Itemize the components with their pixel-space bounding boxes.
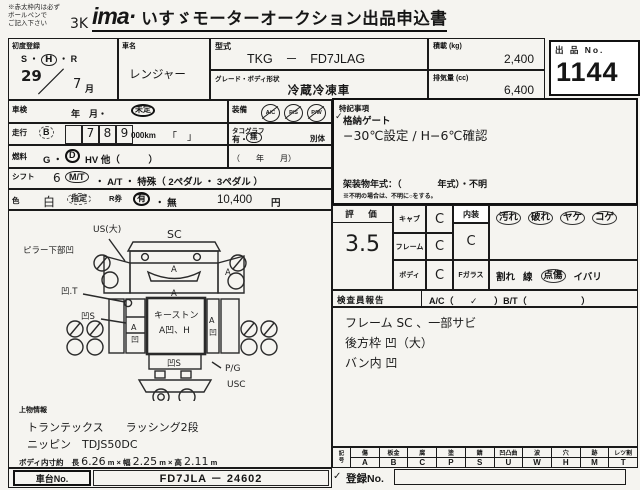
- fuel-cell: 燃料 G ・ D HV 他（ ）: [8, 145, 228, 168]
- color-hand-value: 白: [43, 193, 55, 210]
- legend-letter: A: [351, 458, 379, 467]
- superstructure-line: ニッピン TDJS50DC: [27, 436, 138, 452]
- legend-term: 波: [523, 448, 551, 458]
- fuel-pre: G ・: [43, 152, 63, 166]
- keyword-burn: コゲ: [592, 211, 617, 225]
- equipment-icons: A/C P/S P/W: [261, 104, 330, 122]
- shaken-label: 車検: [12, 104, 27, 115]
- legend-letter: T: [609, 458, 637, 467]
- legend-letter: P: [437, 458, 465, 467]
- displacement-label: 排気量 (cc): [433, 73, 468, 83]
- report-line: 後方枠 凹（大）: [345, 334, 433, 351]
- legend-col: 板金B: [380, 448, 409, 467]
- auction-sheet: ※赤太枠内は必ず ボールペンで ご記入下さい 3K ima· いすゞモーターオー…: [0, 0, 640, 490]
- mileage-badge: B: [39, 126, 54, 139]
- tachograph-circled: 無: [246, 132, 262, 143]
- diagram-sc-label: SC: [167, 228, 182, 241]
- legend-term: 腐: [408, 448, 436, 458]
- digit-box: [65, 125, 82, 144]
- registration-check-mark: ✓: [333, 471, 341, 482]
- glass-keywords: 割れ 線 点傷 イバリ: [496, 269, 602, 283]
- legend-letter: S: [466, 458, 494, 467]
- keyword-crack: 割れ: [496, 269, 515, 283]
- diagram-pillar-label: ピラー下部凹: [23, 245, 74, 256]
- superstructure-line: トランテックス ラッシング2段: [27, 419, 199, 435]
- payload-label: 積載 (kg): [433, 41, 462, 51]
- legend-col: 凹凸曲U: [495, 448, 524, 467]
- shift-rest: ・ A/T ・ 特殊（ 2ペダル ・ 3ペダル ）: [95, 174, 263, 188]
- first-reg-month: 7: [73, 77, 81, 92]
- aircon-icon: A/C: [261, 104, 280, 122]
- diagram-pg-label: P/G: [225, 364, 240, 374]
- ima-logo: ima·: [92, 5, 135, 28]
- equipment-cell: 装備 A/C P/S P/W: [228, 100, 332, 123]
- digit-box: 8: [99, 125, 116, 144]
- legend-letter: C: [408, 458, 436, 467]
- body-rating-value: C: [426, 260, 453, 290]
- registration-value-box: [394, 469, 626, 485]
- car-name-label: 車名: [122, 41, 136, 51]
- shaken-cell: 車検 年 月・ 未定: [8, 100, 228, 123]
- rating-label: 評 価: [333, 206, 392, 223]
- pen-note: ※赤太枠内は必ず ボールペンで ご記入下さい: [8, 4, 60, 27]
- legend-columns: 傷A 板金B 腐C 塗P 錆S 凹凸曲U 波W 穴H 跡M レツ割T: [351, 448, 637, 467]
- legend-col: 錆S: [466, 448, 495, 467]
- grade-cell: グレード・ボディ形状 冷蔵冷凍車: [210, 70, 428, 100]
- power-steering-icon: P/S: [284, 104, 303, 122]
- inspector-report-header: 検査員報告 A/C（ ✓ ）B/T（ ）: [332, 290, 638, 307]
- page-title: いすゞモーターオークション出品申込書: [141, 10, 447, 28]
- legend-col: 腐C: [408, 448, 437, 467]
- diagram-a-windshield: A: [171, 265, 177, 275]
- fuel-post: HV 他（ ）: [85, 152, 158, 166]
- legend-term: 塗: [437, 448, 465, 458]
- inner-dimension-label: ボディ内寸約: [19, 458, 63, 467]
- mileage-brackets: 「 」: [167, 128, 197, 143]
- r-ticket-rest: ・ 無: [155, 195, 177, 209]
- diagram-a-corner: A: [225, 268, 231, 278]
- chassis-label: 車台No.: [13, 470, 91, 486]
- r-ticket-label: R券: [109, 193, 122, 204]
- temperature-note: −30℃設定 / H−6℃確認: [343, 125, 487, 144]
- body-year-line: 架装物年式：（ 年式）・不明: [343, 177, 487, 190]
- pen-note-line: ご記入下さい: [8, 20, 60, 28]
- color-cell: 色 白 指定 R券 有 ・ 無 10,400 円: [8, 189, 332, 210]
- model-cell: 型式 TKG － FD7JLAG: [210, 38, 428, 70]
- hand-slash: ／: [37, 61, 65, 101]
- r-ticket-circled: 有: [133, 192, 150, 206]
- model-value: TKG － FD7JLAG: [247, 48, 365, 67]
- month-label: 月: [85, 82, 94, 95]
- diagram-rear-label: 凹S: [167, 359, 181, 369]
- interior-label: 内装: [453, 205, 489, 223]
- diagram-left-side-u: 凹: [131, 335, 139, 344]
- keyword-line: 線: [523, 269, 533, 283]
- legend-term: 穴: [552, 448, 580, 458]
- legend-letter: H: [552, 458, 580, 467]
- legend-symbol-bottom: 号: [339, 458, 345, 464]
- first-registration-cell: 初度登録 S ・ H ・ R 29 ／ 7 月: [8, 38, 118, 100]
- report-line: フレーム SC 、一部サビ: [345, 314, 476, 331]
- fuel-circled: D: [65, 149, 80, 163]
- frame-rating-value: C: [426, 233, 453, 260]
- pen-note-line: ※赤太枠内は必ず: [8, 4, 60, 12]
- first-registration-label: 初度登録: [12, 41, 40, 51]
- ac-check-mark: ✓: [456, 297, 492, 307]
- registration-row: ✓ 登録No.: [332, 468, 638, 488]
- rating-score-cell: 評 価 3.5: [332, 205, 393, 290]
- report-line: バン内 凹: [345, 354, 397, 371]
- keyword-chip: 点傷: [541, 269, 566, 283]
- body-year-footnote: ※不明の場合は、不明に○をする。: [343, 191, 437, 200]
- legend-letter: M: [581, 458, 609, 467]
- mileage-digits: 789: [65, 125, 133, 144]
- diagram-right-side-a: A: [209, 316, 215, 325]
- frame-rating-label: フレーム: [393, 233, 426, 260]
- legend-term: 板金: [380, 448, 408, 458]
- interior-keywords: 汚れ 破れ ヤケ コゲ: [496, 211, 617, 225]
- inspector-report-label: 検査員報告: [337, 294, 385, 306]
- bt-label: ）B/T（: [494, 296, 527, 306]
- height-value: 2.11: [184, 455, 209, 468]
- special-notes-box: 特記事項 ✓ 格納ゲート −30℃設定 / H−6℃確認 架装物年式：（ 年式）…: [332, 98, 638, 205]
- tachograph-date-cell: （ 年 月）: [228, 145, 332, 168]
- diagram-right-side-u: 凹: [209, 328, 217, 337]
- cab-rating-value: C: [426, 205, 453, 233]
- diagram-left-side-a: A: [131, 323, 137, 332]
- diagram-us-side-label: 凹S: [81, 312, 95, 322]
- length-label: 長: [72, 458, 80, 467]
- diagram-keystone-label: キーストン: [154, 311, 199, 321]
- displacement-cell: 排気量 (cc) 6,400: [428, 70, 545, 100]
- legend-letter: U: [495, 458, 523, 467]
- grade-value: 冷蔵冷凍車: [211, 82, 427, 98]
- chassis-value: FD7JLA － 24602: [93, 470, 329, 486]
- r-ticket-price: 10,400: [217, 194, 252, 206]
- power-window-icon: P/W: [307, 104, 326, 122]
- legend-col: 穴H: [552, 448, 581, 467]
- mileage-unit: 000km: [131, 131, 156, 140]
- diagram-us-big-label: US(大): [93, 223, 121, 235]
- payload-value: 2,400: [504, 52, 534, 66]
- legend-term: 凹凸曲: [495, 448, 523, 458]
- superstructure-label: 上物情報: [19, 405, 47, 415]
- tachograph-date: （ 年 月）: [232, 153, 296, 164]
- car-name-cell: 車名 レンジャー: [118, 38, 210, 100]
- rating-score-value: 3.5: [333, 232, 392, 257]
- hand-mark: 3K: [70, 16, 88, 32]
- diagram-usc-label: USC: [227, 380, 246, 390]
- era-pre: S ・: [21, 54, 39, 64]
- legend-col: 波W: [523, 448, 552, 467]
- ac-label: A/C（: [429, 296, 454, 306]
- glass-keywords-cell: 割れ 線 点傷 イバリ: [489, 260, 638, 290]
- tachograph-extra: 別体: [310, 133, 325, 144]
- shift-circled: M/T: [65, 171, 89, 183]
- length-value: 6.26: [81, 455, 106, 468]
- height-unit: m: [211, 458, 218, 467]
- legend-term: 傷: [351, 448, 379, 458]
- keyword-dirt: 汚れ: [496, 211, 521, 225]
- r-ticket-price-unit: 円: [271, 195, 281, 209]
- symbol-legend: 記 号 傷A 板金B 腐C 塗P 錆S 凹凸曲U 波W 穴H 跡M レツ割T: [332, 447, 638, 468]
- pen-note-line: ボールペンで: [8, 12, 60, 20]
- shaken-circled: 未定: [131, 104, 155, 117]
- lot-number-label: 出 品 No.: [555, 44, 604, 56]
- keyword-fade: ヤケ: [560, 211, 585, 225]
- ac-bt-line: A/C（ ✓ ）B/T（ ）: [429, 294, 590, 307]
- lot-number-box: 出 品 No. 1144: [549, 40, 640, 96]
- shaken-text: 年 月・: [71, 107, 107, 120]
- legend-term: レツ割: [609, 448, 637, 458]
- legend-col: 跡M: [581, 448, 610, 467]
- digit-box: 7: [82, 125, 99, 144]
- keyword-ibari: イバリ: [574, 269, 602, 283]
- payload-cell: 積載 (kg) 2,400: [428, 38, 545, 70]
- mileage-cell: 走行 B 789 000km 「 」: [8, 123, 228, 145]
- lot-number-value: 1144: [556, 57, 619, 88]
- legend-term: 錆: [466, 448, 494, 458]
- width-value: 2.25: [133, 455, 158, 468]
- car-name-value: レンジャー: [129, 66, 186, 82]
- legend-col: 傷A: [351, 448, 380, 467]
- inner-dimension-line: ボディ内寸約 長 6.26 m × 幅 2.25 m × 高 2.11 m: [19, 455, 217, 468]
- legend-letter: W: [523, 458, 551, 467]
- inspector-report-body: フレーム SC 、一部サビ 後方枠 凹（大） バン内 凹: [332, 307, 638, 447]
- length-unit: m ×: [108, 458, 121, 467]
- legend-symbol-header: 記 号: [333, 448, 351, 467]
- shift-label: シフト: [12, 171, 35, 182]
- legend-letter: B: [380, 458, 408, 467]
- registration-label: 登録No.: [346, 471, 384, 486]
- legend-col: 塗P: [437, 448, 466, 467]
- shift-hand-value: 6: [53, 171, 61, 185]
- fuel-label: 燃料: [12, 151, 27, 162]
- interior-rating-value: C: [453, 223, 489, 260]
- tachograph-cell: タコグラフ 有・ 無 別体: [228, 123, 332, 145]
- shift-cell: シフト 6 M/T ・ A/T ・ 特殊（ 2ペダル ・ 3ペダル ）: [8, 168, 332, 189]
- truck-diagram: SC US(大) ピラー下部凹 凹.T 凹S A A A キーストン A凹、H …: [9, 211, 329, 401]
- color-designated: 指定: [67, 193, 91, 205]
- model-label: 型式: [215, 41, 231, 52]
- legend-term: 跡: [581, 448, 609, 458]
- diagram-keystone-note: A凹、H: [159, 326, 190, 336]
- cab-rating-label: キャブ: [393, 205, 426, 233]
- gate-check-mark: ✓: [335, 112, 343, 122]
- diagram-ut-label: 凹.T: [61, 287, 78, 297]
- height-label: 高: [174, 458, 182, 467]
- width-unit: m ×: [159, 458, 172, 467]
- keyword-tear: 破れ: [528, 211, 553, 225]
- damage-diagram-box: SC US(大) ピラー下部凹 凹.T 凹S A A A キーストン A凹、H …: [8, 210, 332, 468]
- displacement-value: 6,400: [504, 83, 534, 97]
- front-glass-label: Fガラス: [453, 260, 489, 290]
- chassis-row: 車台No. FD7JLA － 24602: [8, 468, 332, 488]
- diagram-a-front: A: [171, 289, 177, 299]
- color-label: 色: [12, 195, 20, 206]
- interior-keywords-cell: 汚れ 破れ ヤケ コゲ: [489, 205, 638, 260]
- bt-close-paren: ）: [581, 296, 590, 306]
- body-rating-label: ボディ: [393, 260, 426, 290]
- mileage-label: 走行: [12, 127, 27, 138]
- width-label: 幅: [123, 458, 131, 467]
- equipment-label: 装備: [232, 104, 247, 115]
- legend-col: レツ割T: [609, 448, 637, 467]
- title-bar: ima· いすゞモーターオークション出品申込書: [92, 5, 447, 32]
